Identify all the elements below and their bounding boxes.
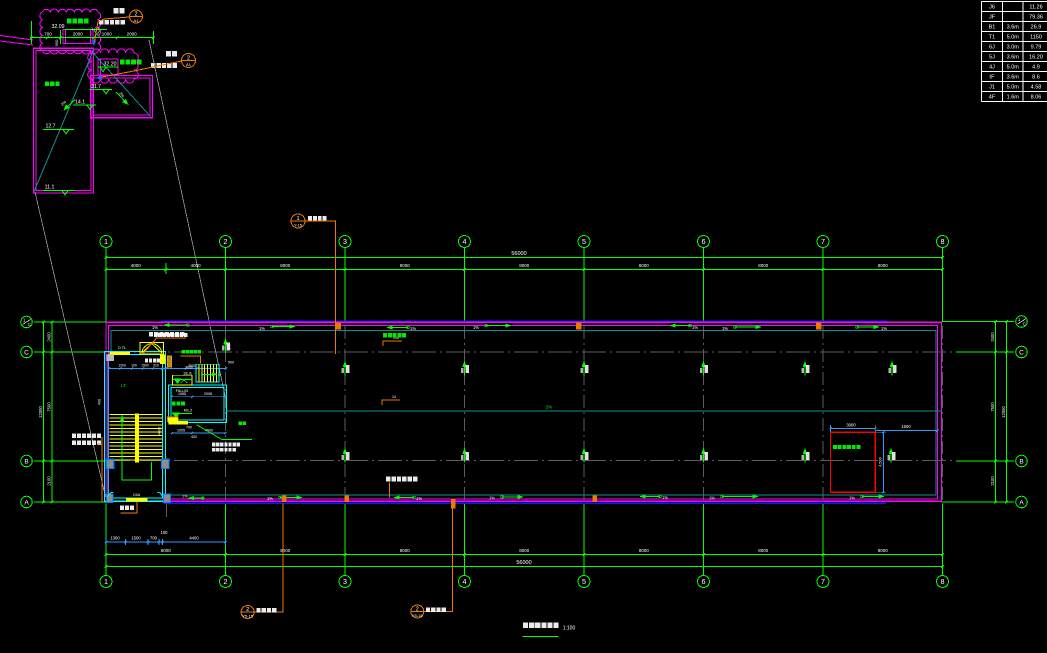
svg-text:56000: 56000: [516, 560, 531, 566]
svg-text:8000: 8000: [639, 548, 650, 553]
svg-text:6: 6: [702, 237, 706, 246]
svg-text:3.6m: 3.6m: [1007, 55, 1020, 61]
svg-text:C: C: [28, 322, 31, 327]
svg-text:1200: 1200: [118, 364, 126, 368]
svg-text:C6A: C6A: [133, 493, 141, 497]
svg-text:J1: J1: [989, 85, 995, 91]
svg-text:4: 4: [463, 237, 467, 246]
svg-text:1%: 1%: [662, 495, 668, 500]
svg-text:1%: 1%: [849, 496, 855, 501]
svg-text:1: 1: [104, 577, 108, 586]
svg-text:100: 100: [131, 364, 137, 368]
svg-text:4,500: 4,500: [879, 457, 883, 467]
svg-text:1: 1: [296, 216, 299, 222]
svg-text:8: 8: [941, 237, 945, 246]
svg-text:700: 700: [186, 426, 192, 430]
svg-text:700: 700: [44, 32, 52, 37]
svg-text:8000: 8000: [519, 548, 530, 553]
svg-text:1:100: 1:100: [563, 626, 576, 632]
svg-text:2100: 2100: [990, 476, 995, 486]
svg-text:4J: 4J: [989, 65, 995, 71]
svg-text:6: 6: [702, 577, 706, 586]
svg-text:C: C: [24, 349, 29, 356]
svg-text:8000: 8000: [758, 263, 769, 268]
svg-text:500: 500: [228, 361, 234, 365]
svg-text:8: 8: [941, 577, 945, 586]
svg-text:2: 2: [246, 607, 249, 613]
svg-text:Y5-15: Y5-15: [412, 613, 423, 618]
svg-text:2%: 2%: [546, 405, 553, 410]
svg-text:1500: 1500: [131, 536, 141, 541]
svg-text:1%: 1%: [692, 325, 698, 330]
svg-text:tF: tF: [990, 75, 996, 81]
svg-text:3: 3: [343, 577, 347, 586]
svg-text:1: 1: [104, 237, 108, 246]
svg-text:2400: 2400: [47, 332, 52, 342]
svg-text:11.1: 11.1: [45, 185, 55, 191]
svg-text:8000: 8000: [758, 548, 769, 553]
svg-text:2: 2: [416, 606, 419, 612]
svg-text:7: 7: [821, 577, 825, 586]
svg-text:C: C: [1019, 349, 1024, 356]
svg-text:M1.2: M1.2: [184, 409, 192, 413]
svg-text:Y-15: Y-15: [294, 223, 303, 228]
svg-text:1%: 1%: [267, 496, 273, 501]
svg-text:32.09: 32.09: [52, 24, 65, 30]
svg-text:12000: 12000: [38, 406, 43, 418]
svg-text:A1: A1: [134, 18, 140, 23]
svg-text:8000: 8000: [400, 548, 411, 553]
svg-text:8000: 8000: [280, 548, 291, 553]
svg-text:5.0m: 5.0m: [1007, 85, 1020, 91]
svg-text:C: C: [1023, 321, 1026, 326]
svg-text:B1: B1: [989, 25, 996, 31]
svg-text:5: 5: [582, 577, 586, 586]
svg-text:2400: 2400: [990, 332, 995, 342]
svg-text:310: 310: [153, 364, 159, 368]
svg-text:1.00: 1.00: [91, 26, 100, 31]
svg-text:6J: 6J: [989, 45, 995, 51]
svg-text:8000: 8000: [878, 263, 889, 268]
svg-text:J6: J6: [989, 5, 995, 11]
svg-text:JF: JF: [989, 15, 996, 21]
svg-text:1%: 1%: [489, 496, 495, 501]
svg-text:8000: 8000: [639, 263, 650, 268]
svg-text:4000: 4000: [191, 263, 202, 268]
svg-text:12000: 12000: [1001, 406, 1006, 418]
svg-text:9.79: 9.79: [1031, 45, 1042, 51]
svg-text:1005: 1005: [177, 429, 185, 433]
svg-text:100: 100: [161, 530, 169, 535]
svg-text:7500: 7500: [990, 402, 995, 412]
svg-text:12.7: 12.7: [45, 124, 55, 130]
svg-text:1%: 1%: [709, 496, 715, 501]
svg-text:1000: 1000: [102, 32, 113, 37]
svg-text:2000: 2000: [73, 32, 84, 37]
svg-text:950: 950: [54, 39, 59, 46]
svg-text:4.58: 4.58: [1031, 85, 1042, 91]
svg-text:A: A: [1019, 499, 1024, 506]
svg-text:b: b: [219, 373, 221, 377]
svg-text:O.TL: O.TL: [118, 346, 126, 350]
svg-text:2000: 2000: [127, 32, 138, 37]
svg-text:1300: 1300: [110, 536, 120, 541]
svg-text:8.06: 8.06: [1031, 95, 1042, 101]
svg-text:26.9: 26.9: [1031, 25, 1042, 31]
svg-text:3.6m: 3.6m: [1007, 25, 1020, 31]
svg-text:8000: 8000: [878, 548, 889, 553]
svg-text:5J: 5J: [989, 55, 995, 61]
svg-text:8000: 8000: [519, 263, 530, 268]
svg-text:1.6m: 1.6m: [1007, 95, 1020, 101]
svg-text:1%: 1%: [416, 496, 422, 501]
svg-text:4.9: 4.9: [1032, 65, 1040, 71]
svg-text:4400: 4400: [189, 536, 199, 541]
svg-text:16.20: 16.20: [1029, 55, 1043, 61]
svg-text:3.0m: 3.0m: [1007, 45, 1020, 51]
svg-text:1150: 1150: [1030, 35, 1042, 41]
svg-text:79.36: 79.36: [1029, 15, 1043, 21]
svg-text:4F: 4F: [989, 95, 996, 101]
svg-text:7500: 7500: [47, 402, 52, 412]
svg-text:8000: 8000: [161, 548, 172, 553]
svg-text:5: 5: [582, 237, 586, 246]
svg-text:Y5-15: Y5-15: [242, 614, 253, 619]
svg-text:A1: A1: [186, 62, 192, 67]
svg-text:1%: 1%: [182, 495, 187, 499]
svg-text:1500: 1500: [141, 364, 149, 368]
svg-text:3: 3: [343, 237, 347, 246]
svg-text:5.0m: 5.0m: [1007, 65, 1020, 71]
svg-text:700: 700: [150, 536, 158, 541]
svg-text:170: 170: [228, 344, 232, 350]
svg-text:1085: 1085: [178, 392, 186, 396]
svg-text:56000: 56000: [511, 251, 526, 257]
svg-text:2: 2: [134, 11, 137, 17]
svg-text:A: A: [24, 499, 29, 506]
svg-text:1%: 1%: [473, 325, 479, 330]
svg-text:2008: 2008: [204, 392, 212, 396]
svg-text:5.0m: 5.0m: [1007, 35, 1020, 41]
svg-text:2000: 2000: [185, 365, 193, 369]
svg-text:400: 400: [98, 399, 102, 405]
svg-text:11.26: 11.26: [1029, 5, 1042, 11]
svg-text:1%: 1%: [259, 326, 265, 331]
svg-text:400: 400: [191, 435, 197, 439]
svg-text:1%: 1%: [881, 326, 887, 331]
svg-text:8000: 8000: [400, 263, 411, 268]
svg-text:1500: 1500: [901, 424, 911, 429]
svg-text:LT: LT: [121, 383, 126, 388]
svg-text:B: B: [1019, 458, 1023, 465]
svg-text:31.6: 31.6: [183, 371, 192, 376]
svg-text:2: 2: [224, 577, 228, 586]
svg-text:1%: 1%: [152, 325, 158, 330]
svg-text:7: 7: [821, 237, 825, 246]
svg-text:2100: 2100: [47, 476, 52, 486]
svg-text:3000: 3000: [846, 422, 856, 427]
svg-text:8.6: 8.6: [1032, 75, 1040, 81]
svg-text:1%: 1%: [410, 326, 416, 331]
svg-text:4000: 4000: [131, 263, 142, 268]
svg-text:2: 2: [187, 55, 190, 61]
svg-text:1%: 1%: [722, 326, 728, 331]
svg-text:3.6m: 3.6m: [1007, 75, 1020, 81]
svg-text:4600: 4600: [158, 427, 162, 435]
svg-text:4: 4: [463, 577, 467, 586]
svg-text:8000: 8000: [280, 263, 291, 268]
svg-text:B: B: [24, 458, 28, 465]
svg-text:14: 14: [392, 395, 396, 399]
svg-text:2: 2: [224, 237, 228, 246]
svg-text:T1: T1: [989, 35, 995, 41]
